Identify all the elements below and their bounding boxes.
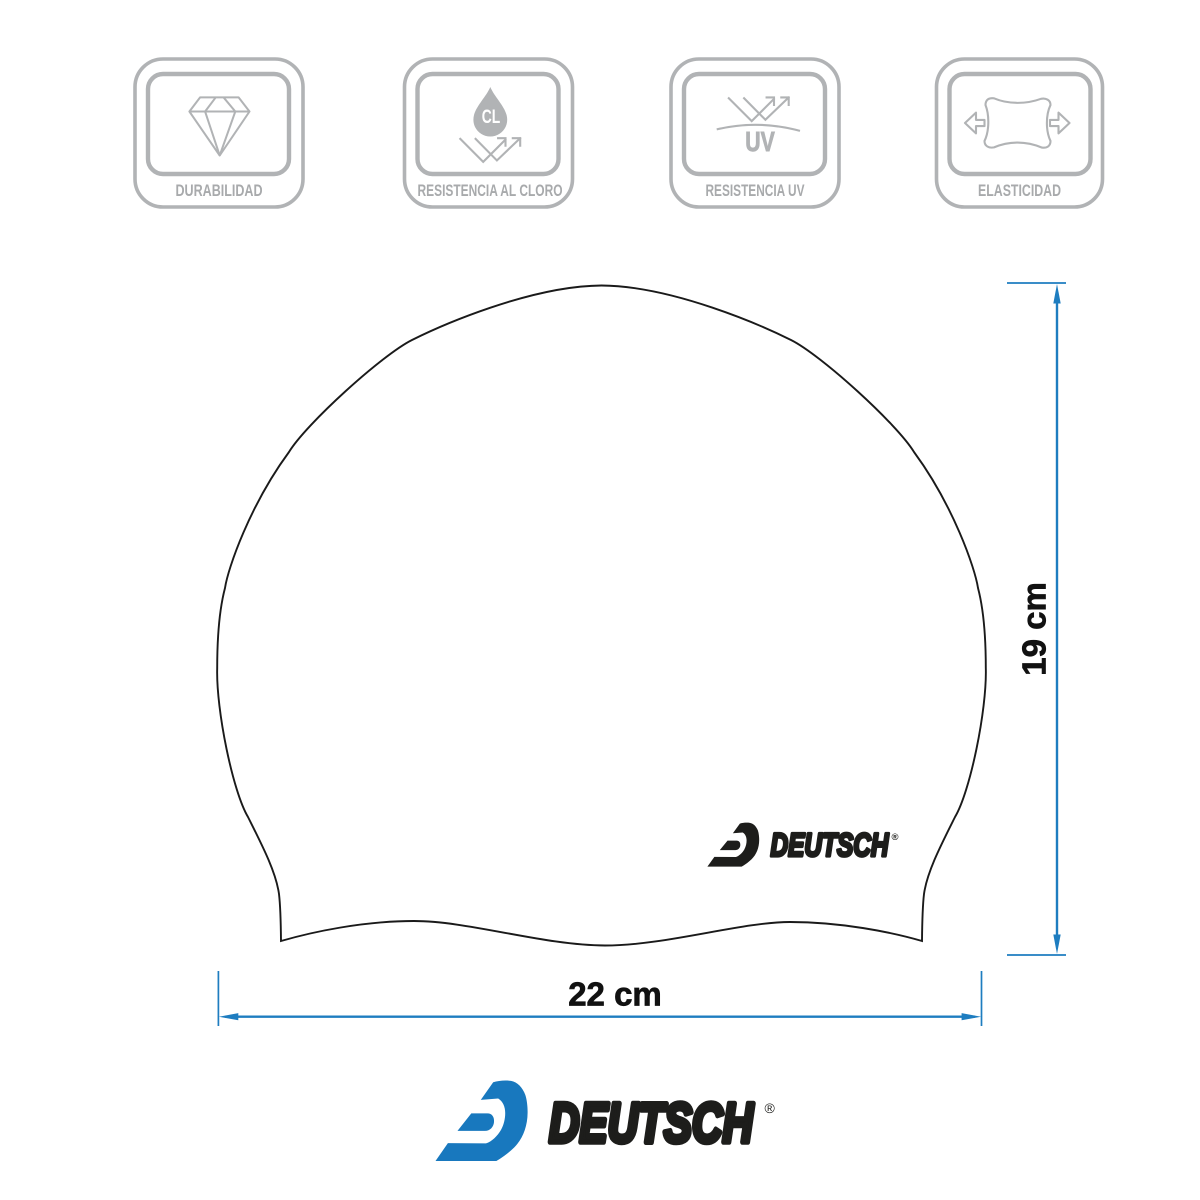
svg-text:®: ®	[892, 832, 899, 843]
svg-text:DURABILIDAD: DURABILIDAD	[176, 182, 263, 200]
svg-text:19 cm: 19 cm	[1016, 582, 1053, 676]
svg-text:RESISTENCIA UV: RESISTENCIA UV	[706, 182, 805, 200]
svg-text:DEUTSCH: DEUTSCH	[771, 827, 890, 863]
svg-text:®: ®	[765, 1100, 776, 1116]
svg-text:DEUTSCH: DEUTSCH	[549, 1092, 754, 1154]
svg-text:RESISTENCIA AL CLORO: RESISTENCIA AL CLORO	[418, 182, 563, 200]
svg-text:22 cm: 22 cm	[568, 976, 662, 1013]
svg-text:UV: UV	[745, 126, 775, 157]
svg-text:CL: CL	[482, 107, 501, 128]
svg-text:ELASTICIDAD: ELASTICIDAD	[978, 182, 1061, 200]
